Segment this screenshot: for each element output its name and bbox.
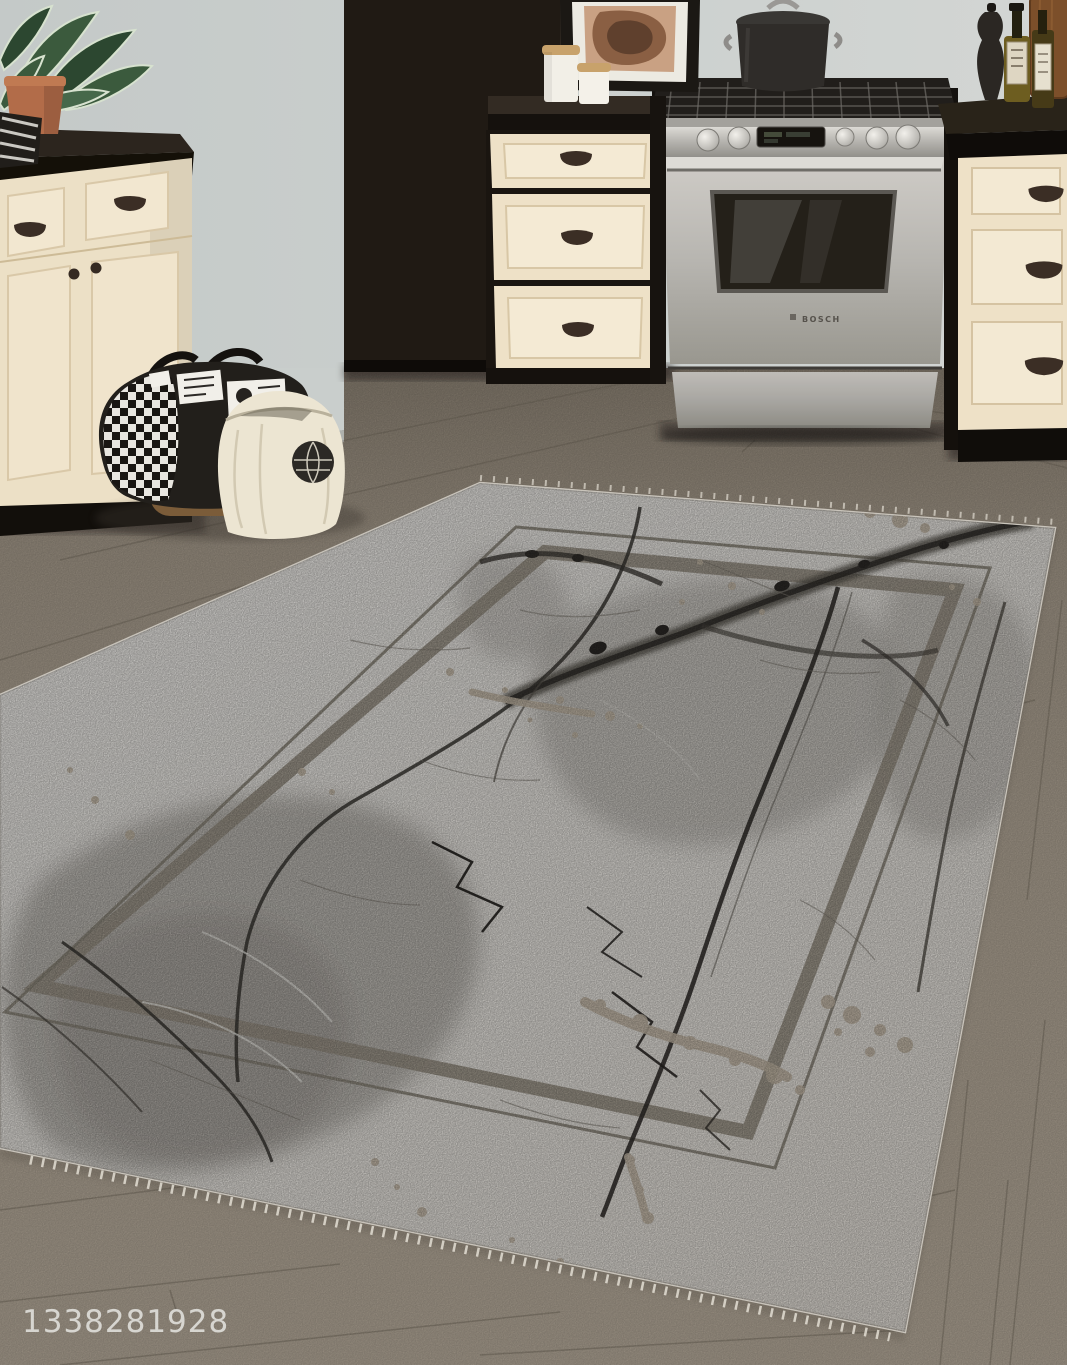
scene-canvas: BOSCH [0,0,1067,1365]
bag-logo [292,441,334,483]
burner-knob [697,129,719,151]
middle-drawers [490,134,660,370]
door-knob [69,269,80,280]
burner-knob [728,127,750,149]
bosch-logo: BOSCH [802,315,841,324]
bosch-logo-mark [790,314,796,320]
right-toe-kick [958,428,1067,462]
tote-bag-canvas [218,391,345,539]
oven-dial [836,128,854,146]
pepper-grinder [977,12,1004,100]
striped-basket [0,112,42,168]
gas-range: BOSCH [650,78,960,450]
burner-knob [896,125,920,149]
middle-drawer-cabinet [486,96,676,384]
burner-knob [866,127,888,149]
watermark-text: 1338281928 [22,1304,229,1340]
kitchen-photo: BOSCH [0,0,1067,1365]
canister-lid [577,63,611,72]
oven-handle [664,157,944,170]
door-knob [91,263,102,274]
plant-pot-rim [4,76,66,87]
